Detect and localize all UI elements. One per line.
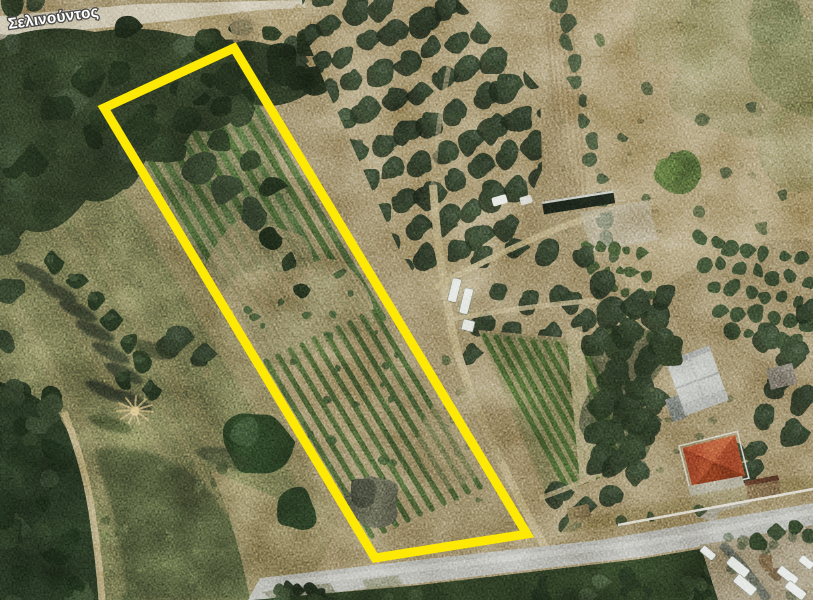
svg-text:Σελινούντος: Σελινούντος [7, 3, 100, 33]
